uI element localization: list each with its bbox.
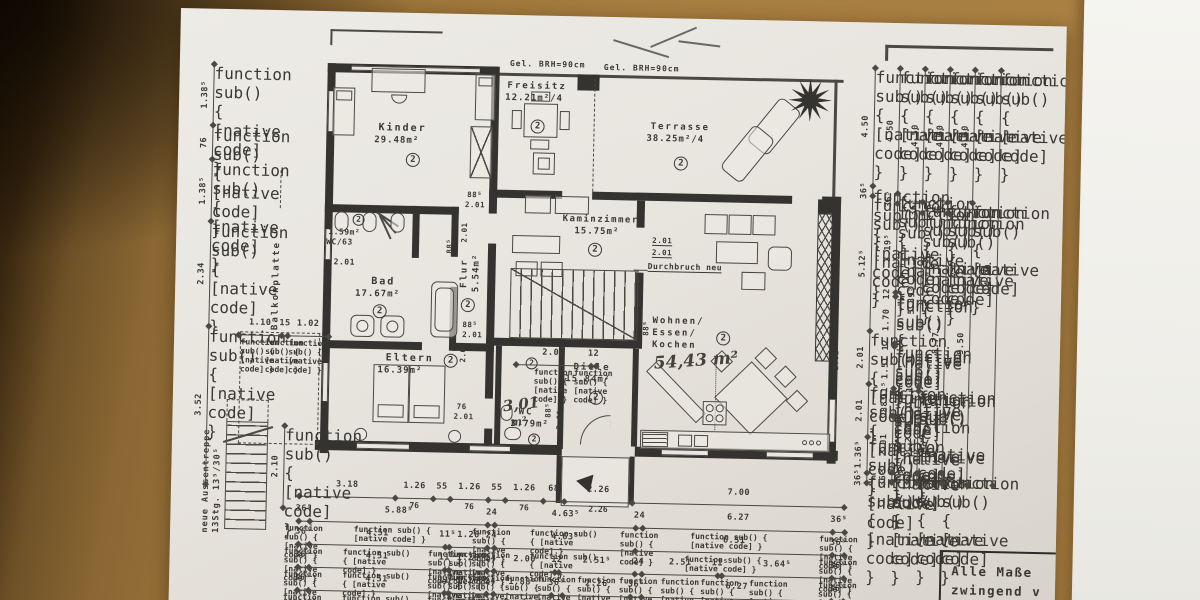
dim-value: 11⁵ xyxy=(438,576,455,586)
dim-value: 36⁵ xyxy=(853,469,863,486)
door-dim-label: 88⁵ xyxy=(544,403,553,418)
sink-basin xyxy=(694,435,708,447)
room-area-wc: 3.79m² xyxy=(510,419,549,430)
dim-segment: 1.38⁵function sub() { [native code] } xyxy=(211,160,218,222)
durchbruch-label: Durchbruch neu xyxy=(648,262,723,274)
dim-value: 2.00 xyxy=(542,348,565,358)
dim-value: 1.10 xyxy=(249,317,272,327)
dim-value: 4.50 xyxy=(935,124,945,147)
dim-value: 1.26 xyxy=(458,482,481,492)
dim-value: 24 xyxy=(486,530,497,540)
bed-pillow xyxy=(478,77,492,86)
dim-value: 36⁵ xyxy=(934,199,944,216)
dim-segment: 1.2676 xyxy=(395,493,433,500)
room-name-terrasse: Terrasse xyxy=(651,122,711,133)
dim-segment: 4.50function sub() { [native code] } xyxy=(872,68,880,187)
dim-tick xyxy=(485,497,492,504)
dim-value: 2.26 xyxy=(587,485,610,495)
dim-segment: 1.70function sub() { [native code] } xyxy=(894,296,901,344)
dim-value: 36⁵ xyxy=(829,561,846,571)
dim-value: 6.27 xyxy=(725,582,748,592)
dim-value: 24 xyxy=(634,511,645,521)
window xyxy=(767,451,813,458)
door-dim-label: 76 xyxy=(457,402,467,411)
chair xyxy=(512,110,522,129)
bidet xyxy=(362,212,376,232)
dim-value: 36⁵ xyxy=(878,469,888,486)
counter-dot xyxy=(802,440,807,445)
dim-value: 4.50 xyxy=(910,124,920,147)
dim-value: 2.01 xyxy=(856,346,866,369)
window xyxy=(357,443,409,450)
dim-segment: 36⁵function sub() { [native code] } xyxy=(866,473,872,483)
dim-right-5: 4.50function sub() { [native code] }9.50… xyxy=(958,69,983,484)
dim-segment: 5.88⁵function sub() { [native code] } xyxy=(309,516,488,526)
dim-value: 1.26 xyxy=(457,530,480,540)
dim-value: 55 xyxy=(436,481,447,491)
dim-value: 2.51 xyxy=(669,557,692,567)
dim-value: 4.63⁵ xyxy=(551,532,579,543)
dim-segment: 36⁵function sub() { [native code] } xyxy=(891,473,897,483)
table xyxy=(512,235,560,254)
dim-value: 36⁵ xyxy=(830,538,847,548)
dim-segment: 1.88⁵function sub() { [native code] } xyxy=(494,589,551,596)
dim-value: 6.27 xyxy=(727,513,750,523)
exterior-stairs xyxy=(224,421,268,530)
armchair xyxy=(768,246,792,270)
durchbruch-dim: 2.01 xyxy=(652,248,672,258)
room-badge-kaminzimmer: 2 xyxy=(588,243,602,257)
room-badge-flur: 2 xyxy=(461,298,475,312)
room-name-bad: Bad xyxy=(371,276,395,288)
dim-segment: 4.51function sub() { [native code] } xyxy=(309,539,446,548)
dim-value: 2.00 xyxy=(513,554,536,564)
dim-value: 36⁵ xyxy=(928,470,938,487)
door-dim-label: 88⁵ xyxy=(462,320,477,329)
dim-segment: 36⁵function sub() { [native code] } xyxy=(916,473,922,484)
dim-value: 1.51 xyxy=(880,356,890,379)
dim-tick xyxy=(629,500,636,507)
dim-value: 88⁵ xyxy=(880,396,890,413)
dim-value: 4.50 xyxy=(960,125,970,148)
dim-tick xyxy=(512,361,519,368)
room-badge-kinder: 2 xyxy=(406,153,420,167)
durchbruch-dim: 2.01 xyxy=(652,236,672,246)
wall xyxy=(592,192,792,204)
dim-segment: 1.38⁵function sub() { [native code] } xyxy=(213,64,220,126)
dim-segment: 9.50function sub() { [native code] } xyxy=(966,203,978,485)
dim-segment: 4.50function sub() { [native code] } xyxy=(922,69,931,202)
room-name-wohnen-3: Kochen xyxy=(652,340,697,351)
wall xyxy=(818,199,834,213)
sofa xyxy=(752,215,775,235)
gel-brh-label-left: Gel. BRH=90cm xyxy=(510,59,586,70)
counter-dot xyxy=(816,440,821,445)
dim-tick xyxy=(540,498,547,505)
bed-pillow xyxy=(336,90,352,100)
dim-tick xyxy=(501,497,508,504)
room-name-wc-klein: WC/63 xyxy=(326,237,353,247)
dim-value: 8.77 xyxy=(931,332,941,355)
dim-value: 1.26 xyxy=(403,481,426,491)
dim-segment: 1.2676 xyxy=(450,494,488,501)
dim-segment: 4.50function sub() { [native code] } xyxy=(947,69,956,202)
dim-tick xyxy=(841,504,848,511)
dim-segment: 2.76function sub() { [native code] } xyxy=(916,391,924,473)
dim-value: 12 xyxy=(551,555,562,565)
door-dim-label: 88⁵ xyxy=(641,321,650,336)
dim-segment: 4.63⁵function sub() { [native code] } xyxy=(495,520,636,529)
dim-value: 2.01 xyxy=(879,433,889,456)
dim-segment: 1.51function sub() { [native code] } xyxy=(893,347,900,389)
chair xyxy=(754,347,777,370)
terrace-divider-dashed xyxy=(592,79,595,192)
top-bracket-mark xyxy=(885,45,888,61)
room-name-kaminzimmer: Kaminzimmer xyxy=(563,214,639,226)
dim-value: 24 xyxy=(485,576,496,586)
dim-right-3: 4.50function sub() { [native code] }36⁵f… xyxy=(908,68,933,483)
dim-value: 5.88⁵ xyxy=(385,505,413,516)
dim-value: 24 xyxy=(633,557,644,567)
window xyxy=(470,445,510,452)
nightstand xyxy=(448,430,461,443)
dim-value: 1.38⁵ xyxy=(198,176,209,204)
dim-value: 4.50 xyxy=(885,119,895,142)
dim-segment: 1.36⁵function sub() { [native code] } xyxy=(866,437,873,473)
hand-sketch-line xyxy=(678,40,720,47)
dim-right-1: 4.50function sub() { [native code] }36⁵f… xyxy=(858,67,883,482)
room-dim-wc-klein: 2.01 xyxy=(334,257,355,266)
sofa xyxy=(728,215,751,235)
room-area-kaminzimmer: 15.75m² xyxy=(574,226,619,237)
top-bracket-mark xyxy=(885,45,1053,51)
dim-value: 2.34 xyxy=(196,262,206,285)
railing-pillar xyxy=(577,74,599,90)
dim-segment: 4.50function sub() { [native code] } xyxy=(972,70,981,203)
dim-value: 12 xyxy=(882,289,892,300)
room-badge-eltern: 2 xyxy=(444,354,458,368)
window xyxy=(662,449,708,456)
dim-value: 36⁵ xyxy=(859,182,869,199)
door-dim-label: 88⁵ xyxy=(445,239,454,254)
dim-value: 3.19⁵ xyxy=(883,234,894,262)
fireplace xyxy=(525,195,551,214)
dim-segment: 1.02function sub() { [native code] } xyxy=(288,330,329,337)
door-dim-label: 88⁵ xyxy=(467,190,482,199)
dim-segment: 1.10function sub() { [native code] } xyxy=(238,329,282,336)
dim-value: 2.51⁵ xyxy=(583,556,611,567)
dim-segment: 12function sub() { [native code] } xyxy=(591,361,596,367)
dim-value: 11⁵ xyxy=(439,530,456,540)
dim-value: 55 xyxy=(491,483,502,493)
sink-basin xyxy=(678,435,692,447)
room-name-wohnen-2: Essen/ xyxy=(652,328,697,339)
hand-sketch-line xyxy=(650,27,697,48)
dim-value: 1.02 xyxy=(297,318,320,328)
room-area-freisitz: 12.21m²/4 xyxy=(505,93,563,104)
dim-sub-value: function sub() { [native code] } xyxy=(573,368,612,405)
dim-value: 15 xyxy=(279,318,290,328)
door-dim-label: 2.01 xyxy=(831,350,840,370)
toilet xyxy=(390,212,404,232)
room-badge-terrasse: 2 xyxy=(674,156,688,170)
dim-value: 14.00 xyxy=(983,263,994,291)
dim-segment: 1.26function sub() { [native code] } xyxy=(449,542,487,549)
wardrobe xyxy=(470,126,493,178)
dim-value: 1.26 xyxy=(513,483,536,493)
wall xyxy=(631,349,639,447)
dim-value: 6.51 xyxy=(723,535,746,545)
dim-value: 1.26 xyxy=(456,576,479,586)
room-area-flur: 5.54m² xyxy=(471,228,482,292)
photo-scene: Gel. BRH=90cm Gel. BRH=90cm xyxy=(0,0,1200,600)
dim-tick xyxy=(447,496,454,503)
dim-tick xyxy=(430,495,437,502)
dim-segment: 5.89⁵function sub() { [native code] } xyxy=(918,213,928,388)
dim-segment: 1.2676 xyxy=(505,495,543,502)
wall xyxy=(412,206,420,258)
dim-value: 5.89⁵ xyxy=(907,286,918,314)
dim-value: 11⁵ xyxy=(439,553,456,563)
dim-value: 36⁵ xyxy=(829,584,846,594)
room-name-freisitz: Freisitz xyxy=(507,81,567,92)
dim-value: 36⁵ xyxy=(294,572,311,582)
white-surface-right xyxy=(1071,0,1200,600)
gel-brh-label-right: Gel. BRH=90cm xyxy=(604,63,680,74)
desk xyxy=(371,68,425,93)
room-area-terrasse: 38.25m²/4 xyxy=(646,134,704,145)
dim-tick xyxy=(392,495,399,502)
sun-icon xyxy=(787,77,834,124)
dim-segment: 36⁵function sub() { [native code] } xyxy=(833,527,844,533)
chair xyxy=(774,365,797,388)
dim-value: 12 xyxy=(881,339,891,350)
chair xyxy=(786,390,809,413)
note-line: zwingend v xyxy=(951,580,1067,600)
counter-dot xyxy=(809,440,814,445)
dim-value: 2.01 xyxy=(854,399,864,422)
dim-segment: 2.34function sub() { [native code] } xyxy=(208,222,216,327)
shelving-hatch xyxy=(815,213,834,361)
dim-segment: 36⁵function sub() { [native code] } xyxy=(832,573,843,579)
dim-segment: 1.26function sub() { [native code] } xyxy=(448,588,486,595)
door-dim-label: 2.01 xyxy=(453,412,473,421)
dim-value: 24 xyxy=(485,553,496,563)
bed-pillow xyxy=(377,404,403,418)
dim-segment: 2.51function sub() { [native code] } xyxy=(642,569,718,577)
door-dim-label: 2.01 xyxy=(465,200,485,209)
dim-value: 1.70 xyxy=(881,308,891,331)
dim-value: 1.36⁵ xyxy=(854,441,865,469)
door-arc xyxy=(580,414,611,445)
door-dimension-labels: 88⁵2.012.0188⁵88⁵2.012.01762.0188⁵2.0188… xyxy=(181,8,1067,27)
dimension-chains: 3.181.2676551.2676551.2676682.262.267.00… xyxy=(181,8,1067,27)
dim-segment: 6.51function sub() { [native code] } xyxy=(635,546,833,556)
planter-inner xyxy=(538,158,550,170)
dim-value: 2.10 xyxy=(270,455,280,478)
room-name-wc: WC xyxy=(519,407,534,417)
dim-sub-value: function sub() { [native code] } xyxy=(533,367,572,404)
dim-segment: 76function sub() { [native code] } xyxy=(212,126,219,160)
dim-segment: 2.10function sub() { [native code] } xyxy=(283,425,291,507)
dim-kamin: 2.00function sub() { [native code] }12fu… xyxy=(516,349,596,367)
dim-value: 12 xyxy=(588,349,599,359)
dim-value: 24 xyxy=(486,508,497,518)
dim-left: 1.38⁵function sub() { [native code] }76f… xyxy=(197,64,222,484)
room-name-kinder: Kinder xyxy=(378,122,426,134)
dim-value: 36⁵ xyxy=(548,578,565,588)
dim-segment: 36⁵function sub() { [native code] } xyxy=(833,550,844,556)
dim-value: 36⁵ xyxy=(830,515,847,525)
room-area-kinder: 29.48m² xyxy=(374,135,419,146)
room-area-hand-wohnen: 54,43 m² xyxy=(653,348,739,374)
dim-value: 5.12⁵ xyxy=(858,249,869,277)
chair xyxy=(391,94,407,103)
dim-value: 1.38⁵ xyxy=(200,80,211,108)
coffee-table xyxy=(716,241,758,264)
dim-segment: 36⁵function sub() { [native code] } xyxy=(832,596,843,600)
dim-value: 36⁵ xyxy=(628,579,645,589)
room-name-eltern: Eltern xyxy=(386,352,434,364)
chair xyxy=(530,139,549,149)
dim-value: 68 xyxy=(548,484,559,494)
bathtub-inner xyxy=(434,287,454,331)
side-table xyxy=(741,272,765,290)
dim-value: 4.51 xyxy=(366,551,389,561)
door-dim-label: 2.01 xyxy=(462,330,482,339)
cabinet xyxy=(555,196,589,215)
dim-segment: 36⁵function sub() { [native code] } xyxy=(941,473,947,484)
dim-value: 36⁵ xyxy=(295,550,312,560)
dim-value: 4.51 xyxy=(366,528,389,538)
dim-segment: 3.52function sub() { [native code] } xyxy=(205,326,214,484)
dim-value: 36⁵ xyxy=(884,190,894,207)
staircase xyxy=(509,268,638,341)
dim-sub-value: function sub() { [native code] } xyxy=(999,70,1066,184)
dim-segment: 5.12⁵function sub() { [native code] } xyxy=(869,196,878,331)
dim-segment: 1.26function sub() { [native code] } xyxy=(449,565,487,572)
dim-value: 76 xyxy=(199,137,209,148)
dim-segment: 2.01function sub() { [native code] } xyxy=(868,331,875,384)
dim-value: 36⁵ xyxy=(909,199,919,216)
chair xyxy=(560,111,570,130)
durchbruch-arrow xyxy=(634,270,648,271)
dim-segment: 7.00 xyxy=(632,498,844,508)
dim-value: 3.64⁵ xyxy=(763,559,791,570)
dim-segment: 2.01function sub() { [native code] } xyxy=(891,417,898,473)
dim-value: 4.63⁵ xyxy=(552,509,580,520)
door-dim-label: 2.01 xyxy=(458,342,467,362)
dim-value: 2.76 xyxy=(904,420,914,443)
dim-value: 4.51 xyxy=(365,574,388,584)
dim-value: 11⁵ xyxy=(712,558,729,568)
dim-segment: 4.50function sub() { [native code] } xyxy=(897,68,906,194)
dim-value: 2.26 xyxy=(585,579,608,589)
dim-value: 9.50 xyxy=(956,332,966,355)
room-area-wc-klein: 1.59m² xyxy=(328,227,360,237)
dim-balkon: 1.10function sub() { [native code] }15fu… xyxy=(238,319,328,337)
dim-value: 7.00 xyxy=(727,488,750,498)
sofa xyxy=(704,214,727,234)
bed-pillow xyxy=(413,405,439,419)
room-name-wohnen-1: Wohnen/ xyxy=(652,316,704,327)
door-dim-label: 2.01 xyxy=(460,222,469,242)
dim-value: 1.88⁵ xyxy=(508,577,536,588)
dim-sub-value: function sub() { [native code] } xyxy=(288,338,327,375)
dim-value: 3.52 xyxy=(193,393,203,416)
dim-segment: 3.64⁵function sub() { [native code] } xyxy=(722,570,833,578)
dim-stair: 2.10function sub() { [native code] } xyxy=(275,425,293,507)
room-area-eltern: 16.39m² xyxy=(377,365,422,376)
dishwasher xyxy=(642,432,668,448)
room-area-bad: 17.67m² xyxy=(355,289,400,300)
dim-value: 36⁵ xyxy=(295,527,312,537)
dim-segment: 3.19⁵function sub() { [native code] } xyxy=(895,204,903,293)
room-badge-wohnen: 2 xyxy=(716,331,730,345)
dim-value: 4.50 xyxy=(860,115,870,138)
floorplan-paper: Gel. BRH=90cm Gel. BRH=90cm xyxy=(167,8,1066,600)
dim-value: 36⁵ xyxy=(903,469,913,486)
dim-value: 11⁵ xyxy=(905,380,915,397)
corner-mark xyxy=(331,29,443,33)
dim-value: 1.26 xyxy=(457,553,480,563)
wall xyxy=(322,340,422,350)
dim-segment: 2.01function sub() { [native code] } xyxy=(867,384,874,437)
corner-mark xyxy=(330,29,332,45)
dim-segment: 6.27function sub() { [native code] } xyxy=(643,523,833,533)
door-dim-label: 2.01 xyxy=(555,409,564,429)
dim-segment: 2.00function sub() { [native code] } xyxy=(494,566,555,573)
